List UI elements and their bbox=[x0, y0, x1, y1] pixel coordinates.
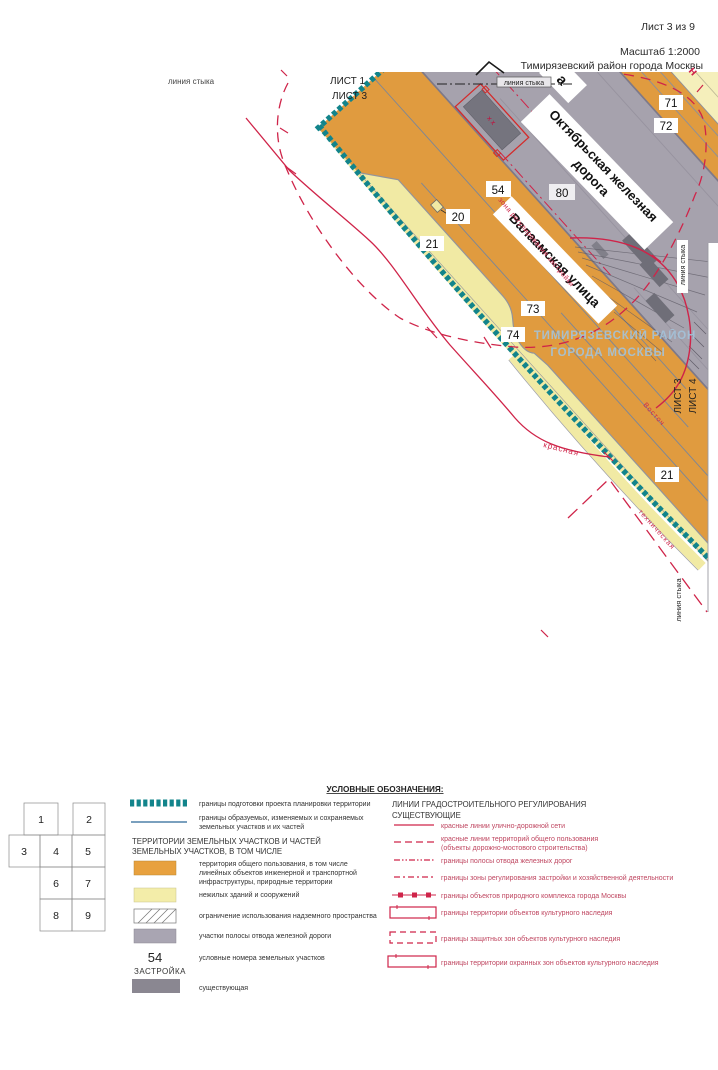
svg-text:21: 21 bbox=[661, 470, 674, 482]
svg-text:74: 74 bbox=[507, 330, 520, 342]
svg-text:ЛИСТ 3: ЛИСТ 3 bbox=[673, 378, 684, 414]
svg-text:(объекты дорожно-мостового стр: (объекты дорожно-мостового строительства… bbox=[441, 844, 588, 852]
svg-text:2: 2 bbox=[86, 814, 92, 826]
svg-text:границы образуемых, изменяемых: границы образуемых, изменяемых и сохраня… bbox=[199, 814, 364, 822]
svg-text:80: 80 bbox=[556, 188, 569, 200]
svg-text:УСЛОВНЫЕ ОБОЗНАЧЕНИЯ:: УСЛОВНЫЕ ОБОЗНАЧЕНИЯ: bbox=[326, 785, 443, 794]
svg-text:54: 54 bbox=[148, 950, 162, 965]
svg-text:земельных участков и их частей: земельных участков и их частей bbox=[199, 823, 304, 831]
svg-text:границы территории охранных зо: границы территории охранных зон объектов… bbox=[441, 959, 659, 967]
svg-text:21: 21 bbox=[426, 239, 439, 251]
svg-text:ТЕРРИТОРИИ ЗЕМЕЛЬНЫХ УЧАСТКОВ: ТЕРРИТОРИИ ЗЕМЕЛЬНЫХ УЧАСТКОВ И ЧАСТЕЙ bbox=[132, 837, 321, 846]
svg-text:условные номера земельных учас: условные номера земельных участков bbox=[199, 955, 325, 962]
svg-text:линия стыка: линия стыка bbox=[674, 578, 683, 622]
svg-text:границы зоны регулирования зас: границы зоны регулирования застройки и х… bbox=[441, 874, 673, 882]
svg-text:ТИМИРЯЗЕВСКИЙ РАЙОН: ТИМИРЯЗЕВСКИЙ РАЙОН bbox=[534, 329, 696, 342]
svg-text:Масштаб 1:2000: Масштаб 1:2000 bbox=[620, 46, 700, 58]
svg-text:красные линии территорий общег: красные линии территорий общего пользова… bbox=[441, 835, 598, 843]
svg-text:73: 73 bbox=[527, 304, 540, 316]
svg-text:6: 6 bbox=[53, 878, 59, 890]
svg-text:границы защитных зон объектов: границы защитных зон объектов культурног… bbox=[441, 935, 620, 943]
svg-text:72: 72 bbox=[660, 121, 673, 133]
svg-text:территория общего пользования,: территория общего пользования, в том чис… bbox=[199, 860, 348, 868]
svg-text:красные линии улично-дорожной: красные линии улично-дорожной сети bbox=[441, 822, 565, 830]
svg-text:9: 9 bbox=[85, 910, 91, 922]
svg-text:Тимирязевский район города Мос: Тимирязевский район города Москвы bbox=[521, 60, 703, 72]
svg-text:границы подготовки проекта пла: границы подготовки проекта планировки те… bbox=[199, 801, 371, 808]
svg-text:линия стыка: линия стыка bbox=[680, 245, 687, 285]
svg-text:4: 4 bbox=[53, 846, 59, 858]
svg-text:ЛИСТ 3: ЛИСТ 3 bbox=[332, 91, 368, 102]
svg-text:ЛИСТ 4: ЛИСТ 4 bbox=[688, 378, 699, 414]
svg-text:Лист 3 из 9: Лист 3 из 9 bbox=[641, 21, 695, 33]
svg-text:8: 8 bbox=[53, 910, 59, 922]
svg-text:ограничение использования надз: ограничение использования надземного про… bbox=[199, 913, 377, 920]
svg-text:инфраструктуры, природные терр: инфраструктуры, природные территории bbox=[199, 879, 333, 886]
svg-text:71: 71 bbox=[665, 98, 678, 110]
svg-text:границы полосы отвода железных: границы полосы отвода железных дорог bbox=[441, 858, 573, 865]
svg-text:границы территории объектов ку: границы территории объектов культурного … bbox=[441, 909, 613, 917]
svg-text:границы объектов природного ко: границы объектов природного комплекса го… bbox=[441, 892, 626, 900]
svg-text:7: 7 bbox=[85, 878, 91, 890]
svg-text:линейных объектов инженерной и: линейных объектов инженерной и транспорт… bbox=[199, 869, 357, 877]
svg-text:ГОРОДА МОСКВЫ: ГОРОДА МОСКВЫ bbox=[550, 347, 665, 359]
svg-text:нежилых зданий и сооружений: нежилых зданий и сооружений bbox=[199, 891, 299, 899]
svg-text:20: 20 bbox=[452, 212, 465, 224]
svg-text:участки полосы отвода железной: участки полосы отвода железной дороги bbox=[199, 932, 331, 940]
svg-text:СУЩЕСТВУЮЩИЕ: СУЩЕСТВУЮЩИЕ bbox=[392, 811, 461, 820]
svg-text:5: 5 bbox=[85, 846, 91, 858]
svg-text:существующая: существующая bbox=[199, 985, 248, 992]
svg-text:линия стыка: линия стыка bbox=[168, 77, 215, 86]
svg-text:ЗЕМЕЛЬНЫХ УЧАСТКОВ, В ТОМ ЧИСЛ: ЗЕМЕЛЬНЫХ УЧАСТКОВ, В ТОМ ЧИСЛЕ bbox=[132, 847, 282, 856]
svg-text:ЛИНИИ ГРАДОСТРОИТЕЛЬНОГО РЕГУЛ: ЛИНИИ ГРАДОСТРОИТЕЛЬНОГО РЕГУЛИРОВАНИЯ bbox=[392, 800, 586, 809]
svg-text:ЛИСТ 1: ЛИСТ 1 bbox=[330, 76, 366, 87]
svg-text:ЗАСТРОЙКА: ЗАСТРОЙКА bbox=[134, 967, 186, 976]
svg-text:3: 3 bbox=[21, 846, 27, 858]
svg-text:1: 1 bbox=[38, 814, 44, 826]
svg-text:линия стыка: линия стыка bbox=[504, 80, 544, 87]
svg-text:54: 54 bbox=[492, 185, 505, 197]
